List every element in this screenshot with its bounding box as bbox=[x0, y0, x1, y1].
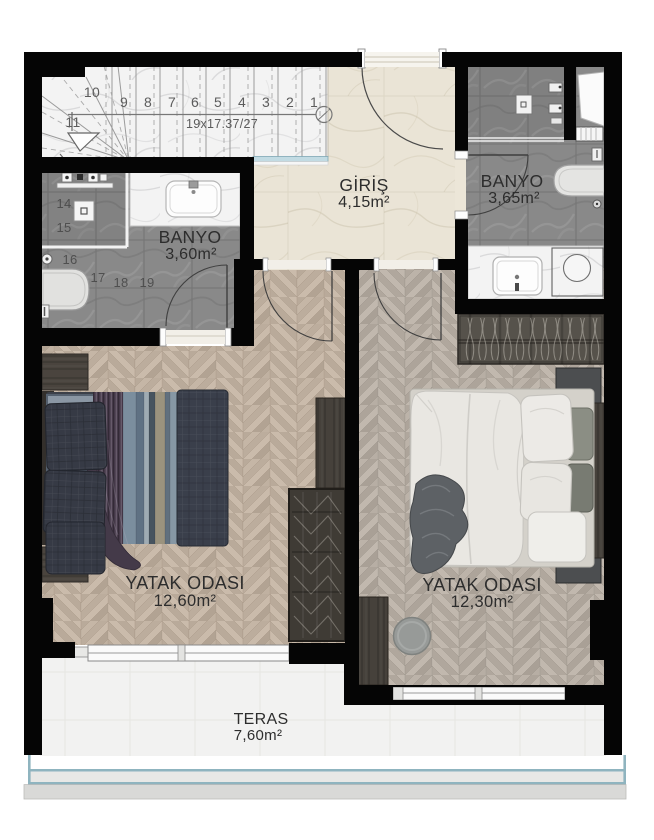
svg-text:1: 1 bbox=[310, 94, 318, 110]
svg-text:9: 9 bbox=[120, 94, 128, 110]
svg-text:7: 7 bbox=[168, 94, 176, 110]
svg-text:6: 6 bbox=[191, 94, 199, 110]
svg-text:15: 15 bbox=[56, 220, 71, 235]
svg-text:19: 19 bbox=[139, 275, 154, 290]
svg-text:2: 2 bbox=[286, 94, 294, 110]
svg-text:16: 16 bbox=[62, 252, 77, 267]
svg-text:12,60m²: 12,60m² bbox=[154, 592, 217, 610]
svg-text:17: 17 bbox=[90, 270, 105, 285]
svg-text:TERAS: TERAS bbox=[234, 711, 289, 728]
svg-text:14: 14 bbox=[56, 196, 71, 211]
svg-text:BANYO: BANYO bbox=[481, 171, 544, 191]
svg-text:11: 11 bbox=[65, 114, 80, 130]
svg-text:4: 4 bbox=[238, 94, 246, 110]
svg-text:19x17.37/27: 19x17.37/27 bbox=[186, 117, 258, 131]
svg-text:18: 18 bbox=[113, 275, 128, 290]
svg-text:3: 3 bbox=[262, 94, 270, 110]
svg-text:GİRİŞ: GİRİŞ bbox=[339, 175, 388, 195]
svg-text:BANYO: BANYO bbox=[159, 227, 222, 247]
svg-text:7,60m²: 7,60m² bbox=[234, 727, 283, 744]
svg-text:3,60m²: 3,60m² bbox=[165, 246, 217, 263]
svg-text:5: 5 bbox=[214, 94, 222, 110]
svg-text:12,30m²: 12,30m² bbox=[451, 593, 514, 611]
svg-text:YATAK ODASI: YATAK ODASI bbox=[422, 575, 541, 595]
svg-text:YATAK ODASI: YATAK ODASI bbox=[125, 573, 244, 593]
svg-text:3,65m²: 3,65m² bbox=[488, 190, 540, 207]
svg-text:10: 10 bbox=[84, 84, 100, 100]
svg-text:4,15m²: 4,15m² bbox=[338, 194, 390, 211]
svg-text:8: 8 bbox=[144, 94, 152, 110]
